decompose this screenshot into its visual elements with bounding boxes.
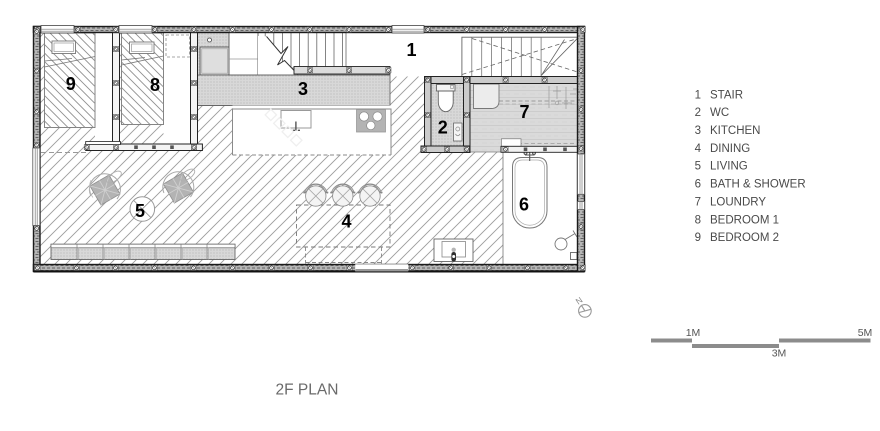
svg-text:3: 3 <box>695 125 701 137</box>
svg-text:1M: 1M <box>686 327 701 339</box>
svg-text:5: 5 <box>135 201 145 221</box>
svg-text:3: 3 <box>298 79 308 99</box>
svg-text:5: 5 <box>695 161 701 173</box>
svg-text:4: 4 <box>695 143 702 155</box>
svg-text:7: 7 <box>695 196 701 208</box>
svg-text:1: 1 <box>695 89 701 101</box>
svg-text:6: 6 <box>519 195 529 215</box>
svg-text:9: 9 <box>66 74 76 94</box>
svg-text:BEDROOM 1: BEDROOM 1 <box>710 214 779 226</box>
svg-text:3M: 3M <box>772 348 787 360</box>
svg-text:5M: 5M <box>858 327 873 339</box>
svg-text:2: 2 <box>695 107 701 119</box>
svg-text:4: 4 <box>341 212 351 232</box>
svg-text:BATH & SHOWER: BATH & SHOWER <box>710 179 806 191</box>
svg-text:2: 2 <box>438 118 448 138</box>
svg-text:1: 1 <box>406 40 416 60</box>
svg-text:KITCHEN: KITCHEN <box>710 125 760 137</box>
svg-text:STAIR: STAIR <box>710 89 743 101</box>
svg-text:9: 9 <box>695 232 701 244</box>
svg-text:LOUNDRY: LOUNDRY <box>710 196 766 208</box>
svg-text:BEDROOM 2: BEDROOM 2 <box>710 232 779 244</box>
svg-text:DINING: DINING <box>710 143 750 155</box>
svg-text:2F PLAN: 2F PLAN <box>276 382 339 399</box>
svg-text:7: 7 <box>519 102 529 122</box>
svg-text:8: 8 <box>695 214 701 226</box>
svg-text:8: 8 <box>150 75 160 95</box>
svg-text:LIVING: LIVING <box>710 161 748 173</box>
svg-text:6: 6 <box>695 179 701 191</box>
svg-text:WC: WC <box>710 107 729 119</box>
